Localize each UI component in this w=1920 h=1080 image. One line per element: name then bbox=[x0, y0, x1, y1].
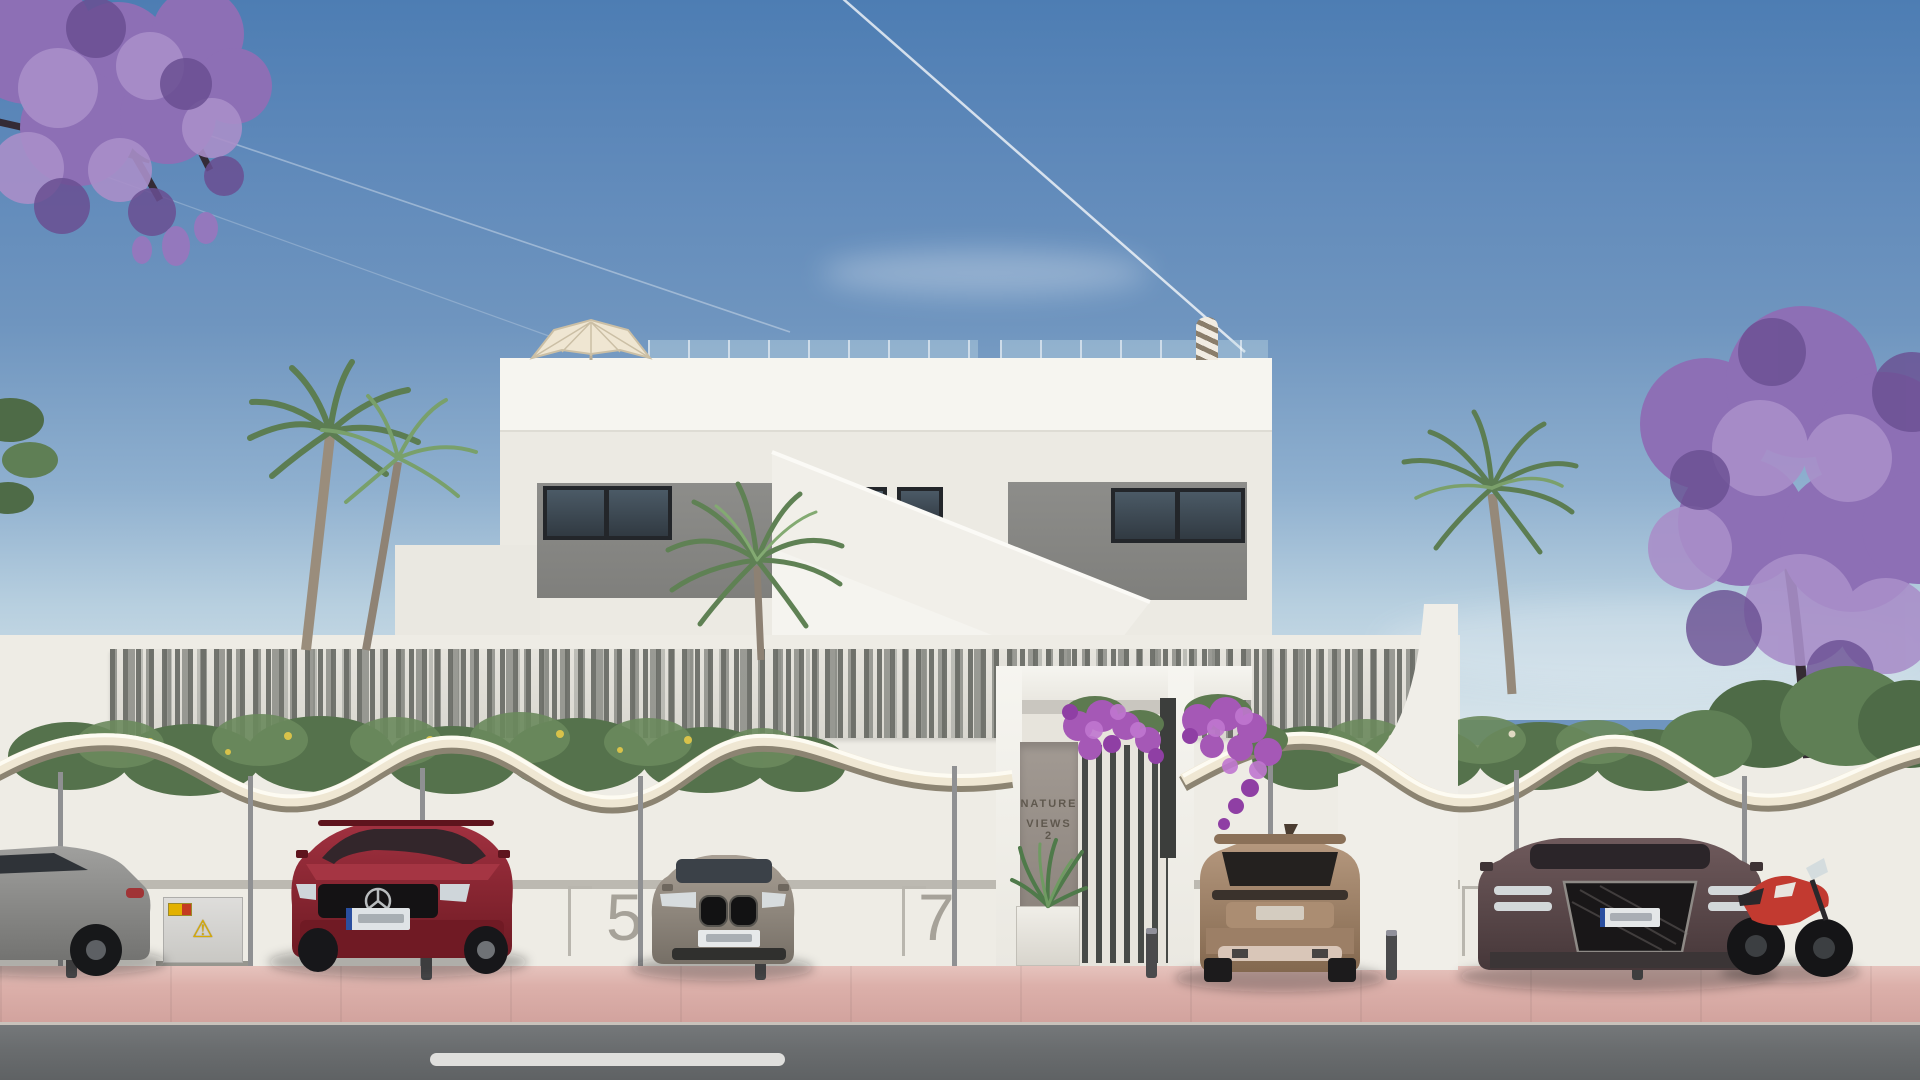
license-plate bbox=[1256, 906, 1304, 920]
car-headlight bbox=[440, 884, 470, 902]
car-headlight bbox=[660, 892, 696, 908]
car-wheel bbox=[298, 928, 338, 972]
green-branch-left bbox=[0, 398, 58, 514]
car-roof-rails bbox=[318, 820, 494, 826]
planter-fern bbox=[1012, 840, 1086, 906]
car-hood bbox=[306, 864, 500, 880]
bmw-kidney-grille bbox=[730, 896, 757, 926]
moto-windscreen bbox=[1806, 858, 1828, 880]
palm-trunk bbox=[1492, 494, 1512, 694]
car-wheel bbox=[1328, 958, 1356, 982]
car-exhaust bbox=[1312, 949, 1328, 958]
palm-trunk bbox=[306, 436, 330, 650]
car-roofline bbox=[1214, 834, 1346, 844]
car-tail-light-bar bbox=[1212, 890, 1348, 900]
architectural-render-scene: 2 5 7 9 NATURE VIEWS 2 ⚠ bbox=[0, 0, 1920, 1080]
jacaranda-tree-left bbox=[0, 0, 272, 266]
palm-fronds bbox=[250, 362, 418, 476]
car-headlight bbox=[762, 892, 786, 908]
car-red-mercedes-suv bbox=[291, 820, 512, 974]
car-mirror bbox=[1750, 862, 1763, 871]
scene-overlay bbox=[0, 0, 1920, 1080]
palm-trunk bbox=[366, 462, 398, 650]
car-gray-bmw-hatchback bbox=[652, 855, 794, 964]
car-bumper bbox=[1490, 952, 1762, 968]
palm-fronds-light bbox=[322, 396, 476, 502]
car-exhaust bbox=[1232, 949, 1248, 958]
car-antenna-fin bbox=[1284, 824, 1298, 834]
palm-trunk bbox=[757, 566, 761, 660]
bougainvillea-left bbox=[1062, 696, 1164, 764]
car-windshield bbox=[676, 859, 772, 883]
car-wheel bbox=[1204, 958, 1232, 982]
car-mirror bbox=[296, 850, 308, 858]
car-rear-glass bbox=[1222, 852, 1338, 886]
car-intake bbox=[672, 948, 786, 960]
palm-tree-center bbox=[668, 484, 842, 660]
car-mirror bbox=[498, 850, 510, 858]
car-tail-light bbox=[126, 888, 144, 898]
palm-tree-left-pair bbox=[250, 362, 476, 650]
car-gray-sedan bbox=[0, 846, 150, 976]
car-mirror bbox=[1480, 862, 1493, 871]
car-maroon-suv-front bbox=[1478, 838, 1766, 970]
car-bronze-crossover-rear bbox=[1200, 824, 1360, 982]
car-windshield bbox=[1530, 844, 1710, 869]
car-mirror bbox=[778, 884, 789, 891]
car-mirror bbox=[662, 884, 673, 891]
bmw-kidney-grille bbox=[700, 896, 727, 926]
